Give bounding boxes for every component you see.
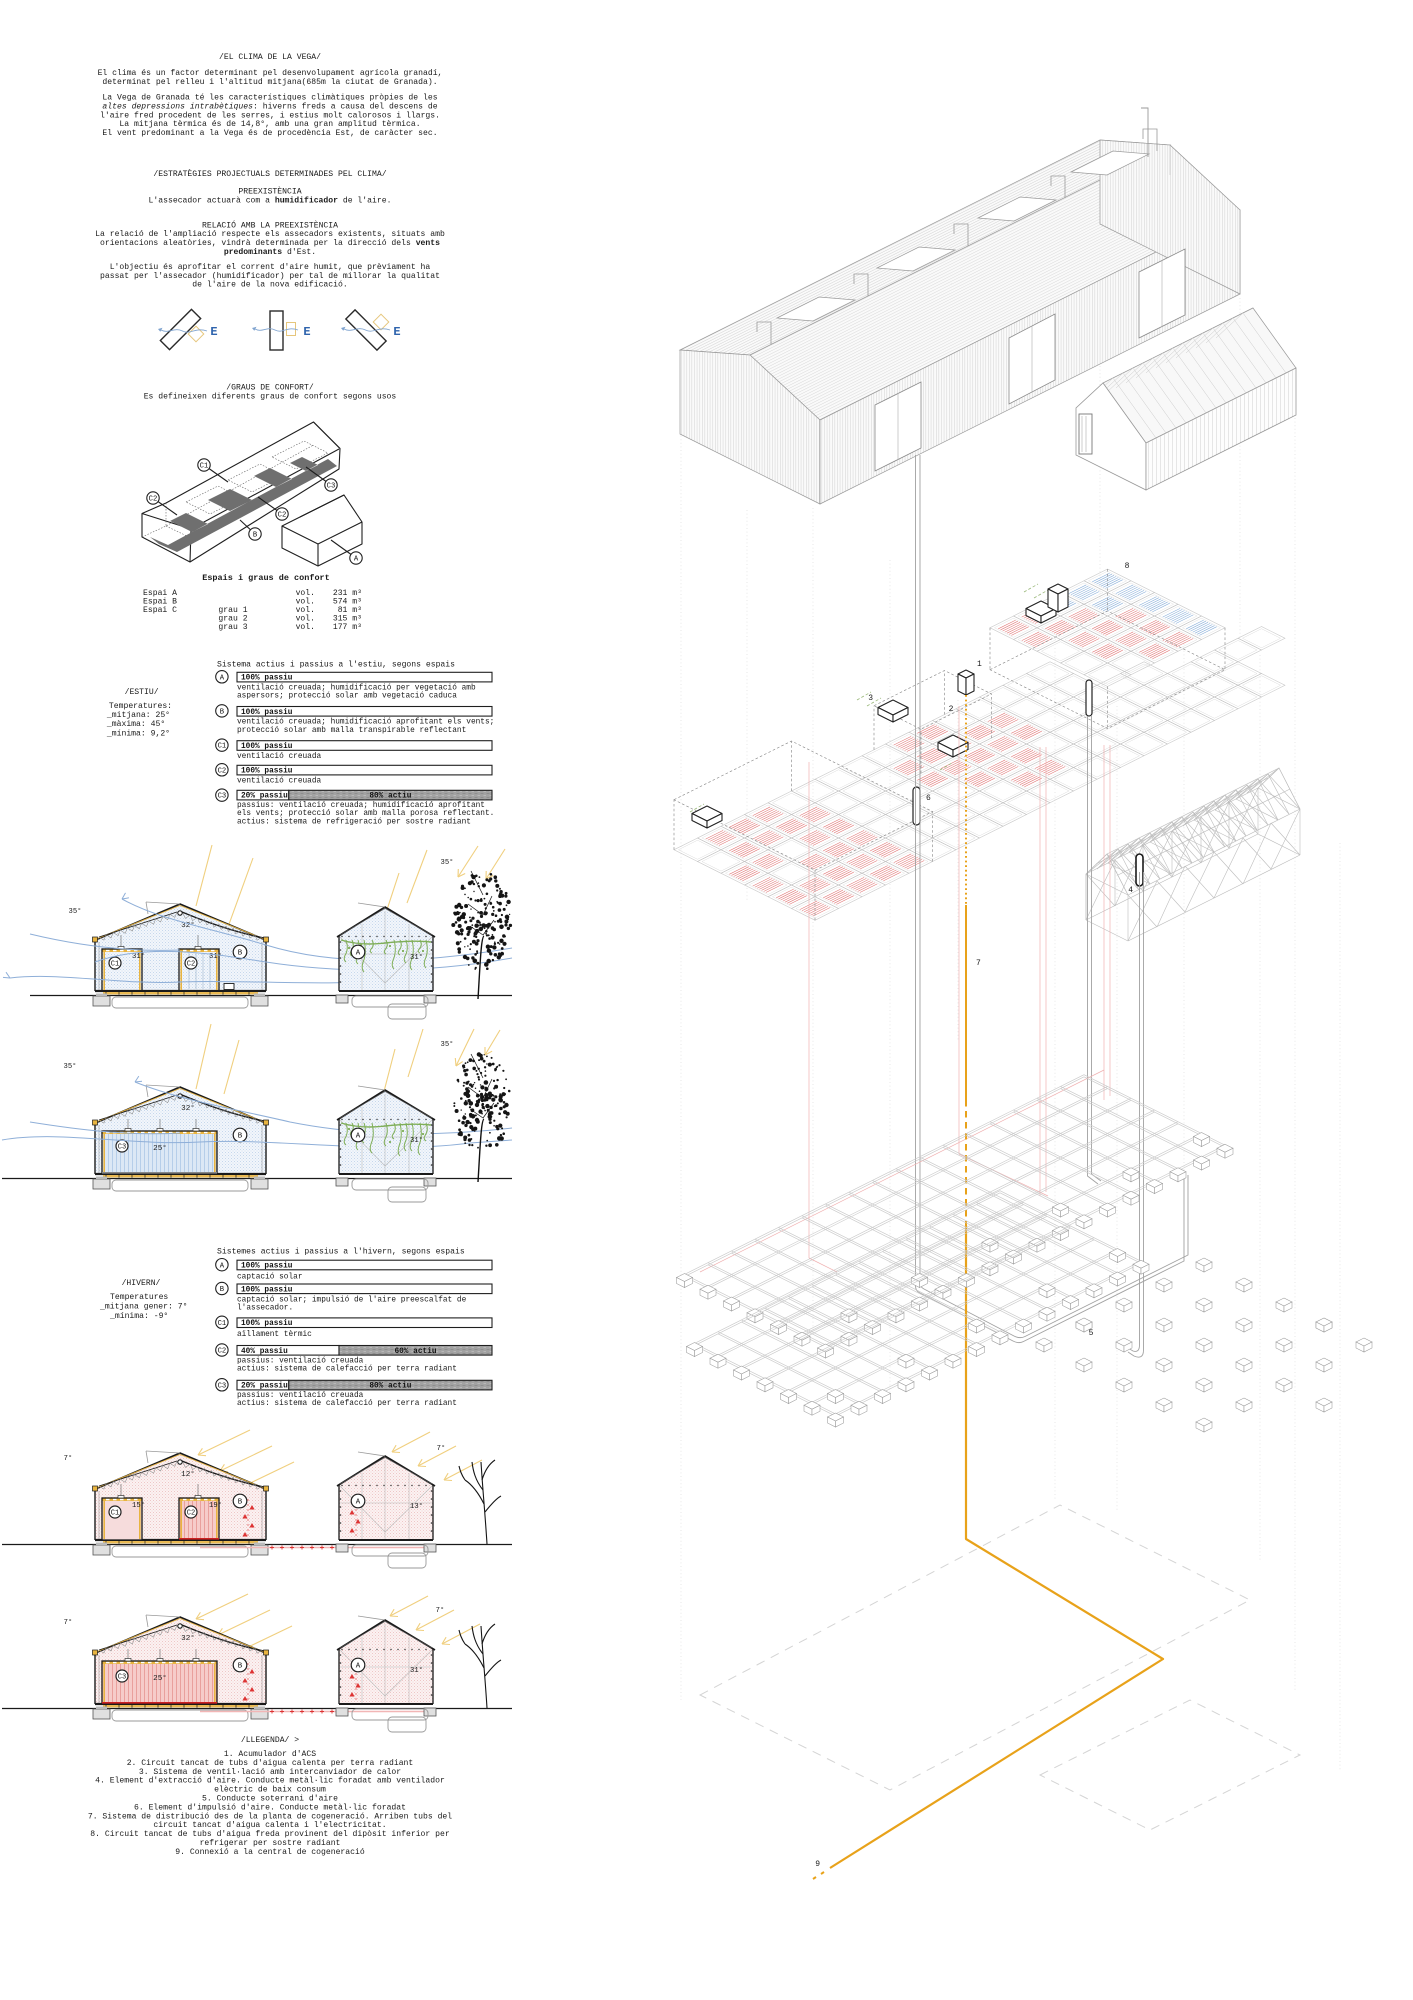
svg-text:3: 3 (868, 694, 873, 703)
svg-text:E: E (210, 325, 217, 339)
svg-text:ventilació creuada: ventilació creuada (237, 753, 322, 761)
svg-text:Es defineixen diferents graus: Es defineixen diferents graus de confort… (144, 393, 397, 402)
svg-text:C1: C1 (200, 463, 209, 471)
svg-text:Espais i graus de confort: Espais i graus de confort (202, 573, 330, 583)
svg-text:A: A (354, 556, 359, 564)
svg-text:ventilació creuada: ventilació creuada (237, 778, 322, 786)
svg-text:A: A (220, 1262, 225, 1270)
svg-text:2: 2 (949, 705, 954, 714)
svg-text:7°: 7° (64, 1454, 73, 1463)
svg-text:A: A (356, 1499, 361, 1507)
svg-text:100% passiu: 100% passiu (241, 768, 293, 776)
svg-text:E: E (393, 325, 400, 339)
svg-text:80% actiu: 80% actiu (369, 1383, 411, 1391)
svg-text:C3: C3 (118, 1144, 126, 1152)
svg-text:B: B (253, 532, 258, 540)
svg-text:C3: C3 (118, 1674, 126, 1682)
svg-text:A: A (356, 950, 361, 958)
svg-text:3. Sistema de ventil·lació amb: 3. Sistema de ventil·lació amb intercanv… (139, 1768, 401, 1777)
svg-text:PREEXISTÈNCIA: PREEXISTÈNCIA (238, 187, 301, 196)
svg-text:_mitjana: 25°: _mitjana: 25° (106, 711, 170, 720)
svg-text:5: 5 (1089, 1329, 1094, 1338)
svg-text:35°: 35° (64, 1062, 77, 1071)
svg-text:C1: C1 (218, 1320, 227, 1328)
svg-text:circuit tancat d'aigua calenta: circuit tancat d'aigua calenta i l'elect… (153, 1821, 386, 1830)
svg-text:31°: 31° (410, 1666, 423, 1675)
svg-text:C2: C2 (218, 767, 227, 775)
svg-text:/ESTRATÈGIES PROJECTUALS DETER: /ESTRATÈGIES PROJECTUALS DETERMINADES PE… (153, 170, 386, 179)
svg-text:actius: sistema de calefacció: actius: sistema de calefacció per terra … (237, 1400, 457, 1408)
svg-text:Espai C: Espai C (143, 606, 177, 615)
svg-text:5. Conducte soterrani d'aire: 5. Conducte soterrani d'aire (202, 1795, 338, 1804)
svg-text:Sistemes actius i passius a l': Sistemes actius i passius a l'hivern, se… (217, 1247, 465, 1256)
svg-text:2. Circuit tancat de tubs d'ai: 2. Circuit tancat de tubs d'aigua calent… (127, 1759, 414, 1768)
svg-text:C2: C2 (187, 961, 195, 969)
svg-text:actius: sistema de calefacció: actius: sistema de calefacció per terra … (237, 1366, 457, 1374)
svg-text:C2: C2 (218, 1348, 227, 1356)
svg-text:ventilació creuada; humidifica: ventilació creuada; humidificació per ve… (237, 685, 476, 693)
svg-text:/GRAUS DE CONFORT/: /GRAUS DE CONFORT/ (226, 384, 314, 393)
svg-text:32°: 32° (181, 1634, 195, 1643)
svg-text:La Vega de Granada té les cara: La Vega de Granada té les característiqu… (102, 94, 437, 103)
svg-text:C1: C1 (218, 743, 227, 751)
svg-text:La relació de l'ampliació resp: La relació de l'ampliació respecte els a… (95, 230, 445, 239)
svg-text:captació solar: captació solar (237, 1274, 303, 1282)
svg-text:/ESTIU/: /ESTIU/ (125, 688, 159, 697)
svg-text:C2: C2 (187, 1510, 195, 1518)
svg-text:C1: C1 (111, 1510, 119, 1518)
svg-text:predominants d'Est.: predominants d'Est. (224, 248, 316, 257)
svg-text:35°: 35° (441, 858, 454, 867)
svg-text:/HIVERN/: /HIVERN/ (122, 1279, 161, 1288)
svg-text:13°: 13° (410, 1502, 423, 1511)
svg-text:35°: 35° (441, 1040, 454, 1049)
svg-text:La mitjana tèrmica és de 14,8°: La mitjana tèrmica és de 14,8°, amb una … (119, 120, 420, 129)
svg-text:6. Element d'impulsió d'aire.: 6. Element d'impulsió d'aire. Conducte m… (134, 1803, 406, 1812)
svg-text:refrigerar per sostre radiant: refrigerar per sostre radiant (200, 1839, 341, 1848)
svg-text:passius: ventilació creuada; h: passius: ventilació creuada; humidificac… (237, 802, 485, 810)
svg-text:passius: ventilació creuada: passius: ventilació creuada (237, 1358, 364, 1366)
svg-text:C3: C3 (327, 483, 336, 491)
svg-text:_mínima: 9,2°: _mínima: 9,2° (106, 729, 170, 738)
svg-text:_mitjana gener: 7°: _mitjana gener: 7° (99, 1303, 187, 1312)
svg-text:els vents; protecció solar amb: els vents; protecció solar amb malla por… (237, 810, 494, 818)
svg-text:l'aire fred procedent de les s: l'aire fred procedent de les serres, i e… (100, 111, 440, 120)
svg-text:Sistema actius i passius a l'e: Sistema actius i passius a l'estiu, sego… (217, 660, 455, 669)
svg-text:C2: C2 (278, 512, 287, 520)
svg-text:25°: 25° (153, 1674, 167, 1683)
svg-text:60% actiu: 60% actiu (394, 1348, 436, 1356)
svg-text:ventilació creuada; humidifica: ventilació creuada; humidificació aprofi… (237, 719, 494, 727)
svg-text:20% passiu: 20% passiu (241, 793, 288, 801)
svg-text:7. Sistema de distribució des: 7. Sistema de distribució des de la plan… (88, 1812, 452, 1821)
svg-text:Temperatures: Temperatures (110, 1293, 168, 1302)
svg-text:altes depressions intrabètique: altes depressions intrabètiques: hiverns… (102, 102, 437, 111)
svg-text:aspersors; protecció solar amb: aspersors; protecció solar amb vegetació… (237, 693, 457, 701)
svg-text:7°: 7° (64, 1618, 73, 1627)
svg-text:/LLEGENDA/ >: /LLEGENDA/ > (241, 1736, 299, 1745)
svg-text:B: B (238, 1663, 243, 1671)
svg-text:determinat pel relleu i l'alti: determinat pel relleu i l'altitud mitjan… (102, 78, 437, 87)
svg-text:actius: sistema de refrigeraci: actius: sistema de refrigeració per sost… (237, 818, 471, 826)
svg-text:El clima és un factor determin: El clima és un factor determinant pel de… (98, 69, 443, 78)
svg-text:l'assecador.: l'assecador. (237, 1305, 293, 1313)
svg-text:_màxima: 45°: _màxima: 45° (106, 720, 165, 729)
svg-text:grau 3: grau 3 (218, 623, 247, 632)
svg-text:1: 1 (977, 660, 982, 669)
svg-text:40% passiu: 40% passiu (241, 1348, 288, 1356)
svg-text:A: A (220, 674, 225, 682)
svg-text:6: 6 (926, 794, 931, 803)
svg-text:31°: 31° (410, 1136, 423, 1145)
svg-text:4: 4 (1128, 886, 1133, 895)
svg-text:aïllament tèrmic: aïllament tèrmic (237, 1331, 312, 1339)
svg-text:7: 7 (976, 959, 981, 968)
svg-text:elèctric de baix consum: elèctric de baix consum (214, 1786, 326, 1795)
svg-text:4. Element d'extracció d'aire.: 4. Element d'extracció d'aire. Conducte … (95, 1777, 445, 1786)
svg-text:100% passiu: 100% passiu (241, 1320, 293, 1328)
svg-text:C2: C2 (149, 496, 158, 504)
svg-text:7°: 7° (436, 1606, 445, 1615)
svg-text:protecció solar amb malla tran: protecció solar amb malla transpirable r… (237, 727, 466, 735)
svg-text:C3: C3 (218, 793, 227, 801)
svg-text:B: B (238, 1499, 243, 1507)
svg-text:A: A (356, 1663, 361, 1671)
svg-text:B: B (220, 1286, 225, 1294)
svg-text:RELACIÓ AMB LA PREEXISTÈNCIA: RELACIÓ AMB LA PREEXISTÈNCIA (202, 220, 338, 230)
svg-text:passius: ventilació creuada: passius: ventilació creuada (237, 1392, 364, 1400)
svg-text:100% passiu: 100% passiu (241, 709, 293, 717)
svg-text:20% passiu: 20% passiu (241, 1383, 288, 1391)
svg-text:100% passiu: 100% passiu (241, 1263, 293, 1271)
svg-text:B: B (238, 1133, 243, 1141)
svg-text:19°: 19° (209, 1501, 222, 1510)
svg-text:12°: 12° (181, 1470, 195, 1479)
svg-text:31°: 31° (209, 952, 222, 961)
svg-text:L'assecador actuarà com a humi: L'assecador actuarà com a humidificador … (149, 196, 392, 205)
svg-text:C1: C1 (111, 961, 119, 969)
svg-text:177 m³: 177 m³ (333, 623, 362, 632)
svg-text:C3: C3 (218, 1382, 227, 1390)
svg-text:100% passiu: 100% passiu (241, 1286, 293, 1294)
svg-text:25°: 25° (153, 1144, 167, 1153)
svg-text:32°: 32° (181, 1104, 195, 1113)
svg-text:9: 9 (815, 1860, 820, 1869)
svg-text:B: B (238, 950, 243, 958)
svg-text:100% passiu: 100% passiu (241, 743, 293, 751)
svg-text:35°: 35° (69, 907, 82, 916)
svg-text:8. Circuit tancat de tubs d'ai: 8. Circuit tancat de tubs d'aigua freda … (90, 1830, 450, 1839)
svg-text:15°: 15° (132, 1501, 145, 1510)
svg-text:_mínima: -9°: _mínima: -9° (109, 1312, 168, 1321)
svg-text:80% actiu: 80% actiu (369, 793, 411, 801)
svg-text:vol.: vol. (296, 623, 315, 632)
svg-text:9. Connexió a la central de co: 9. Connexió a la central de cogeneració (175, 1848, 365, 1857)
svg-text:B: B (220, 709, 225, 717)
svg-text:orientacions aleatòries, vindr: orientacions aleatòries, vindrà determin… (100, 239, 440, 248)
svg-text:captació solar; impulsió de l': captació solar; impulsió de l'aire prees… (237, 1297, 467, 1305)
svg-text:1. Acumulador d'ACS: 1. Acumulador d'ACS (224, 1750, 316, 1759)
svg-text:Temperatures:: Temperatures: (109, 702, 172, 711)
svg-text:7°: 7° (437, 1444, 446, 1453)
svg-text:de l'aire de la nova edificaci: de l'aire de la nova edificació. (192, 280, 347, 289)
svg-text:E: E (303, 325, 310, 339)
svg-text:El vent predominant a la Vega: El vent predominant a la Vega és de proc… (102, 129, 437, 138)
svg-text:/EL CLIMA DE LA VEGA/: /EL CLIMA DE LA VEGA/ (219, 53, 321, 62)
svg-text:31°: 31° (410, 953, 423, 962)
svg-text:A: A (356, 1133, 361, 1141)
svg-text:8: 8 (1125, 562, 1130, 571)
svg-text:100% passiu: 100% passiu (241, 675, 293, 683)
